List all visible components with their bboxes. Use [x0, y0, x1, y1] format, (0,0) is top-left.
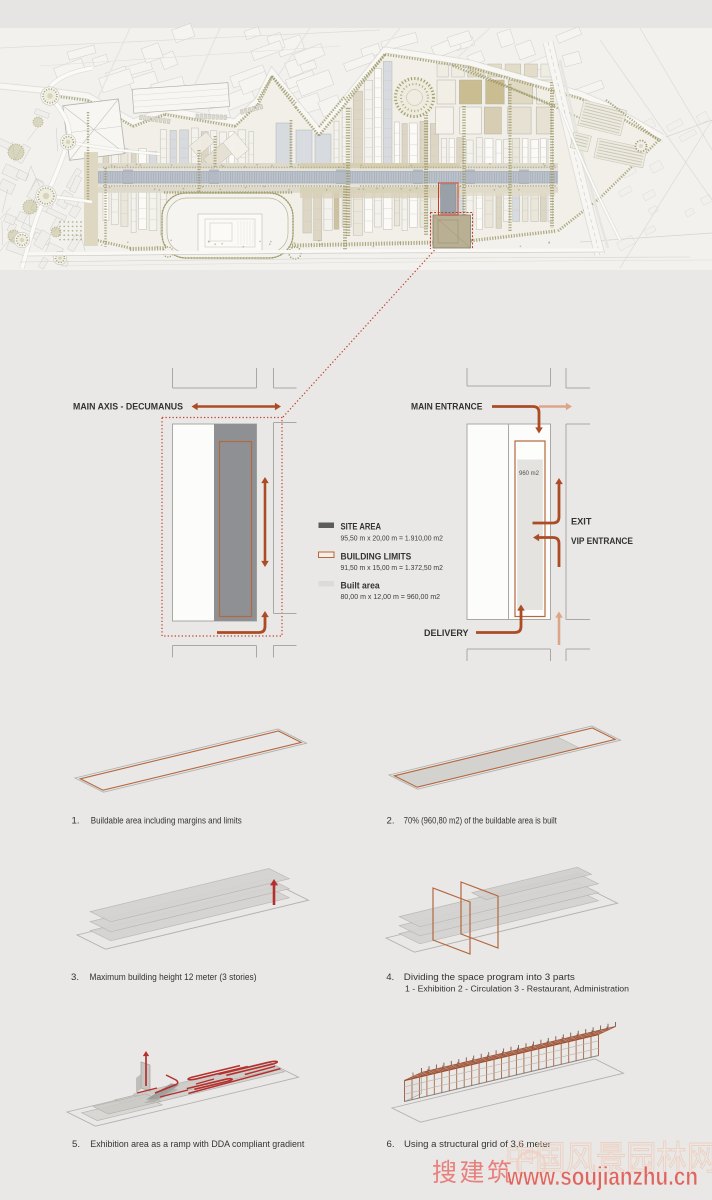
svg-text:VIP ENTRANCE: VIP ENTRANCE: [571, 536, 634, 547]
svg-text:5.: 5.: [72, 1139, 80, 1150]
svg-text:BUILDING LIMITS: BUILDING LIMITS: [341, 552, 412, 563]
svg-text:70% (960,80 m2) of the buildab: 70% (960,80 m2) of the buildable area is…: [404, 816, 557, 827]
svg-text:3.: 3.: [71, 972, 79, 983]
svg-text:Maximum building height 12 met: Maximum building height 12 meter (3 stor…: [90, 972, 257, 983]
svg-text:2.: 2.: [387, 816, 395, 827]
svg-text:MAIN AXIS - DECUMANUS: MAIN AXIS - DECUMANUS: [73, 402, 184, 413]
svg-text:Built area: Built area: [341, 581, 381, 592]
svg-text:MAIN ENTRANCE: MAIN ENTRANCE: [411, 402, 483, 413]
svg-text:Dividing the space program int: Dividing the space program into 3 parts: [404, 972, 575, 983]
svg-text:80,00 m x 12,00 m = 960,00 m2: 80,00 m x 12,00 m = 960,00 m2: [341, 592, 441, 601]
svg-text:www.soujianzhu.cn: www.soujianzhu.cn: [506, 1161, 698, 1191]
svg-text:1 - Exhibition 2 - Circulatio: 1 - Exhibition 2 - Circulation 3 - Resta…: [405, 984, 629, 994]
svg-text:1.: 1.: [72, 816, 80, 827]
svg-text:960 m2: 960 m2: [519, 470, 539, 477]
svg-text:DELIVERY: DELIVERY: [424, 628, 469, 639]
svg-text:91,50 m x 15,00 m = 1.372,50 m: 91,50 m x 15,00 m = 1.372,50 m2: [341, 563, 443, 572]
svg-text:95,50 m x 20,00 m = 1.910,00 m: 95,50 m x 20,00 m = 1.910,00 m2: [341, 534, 443, 543]
svg-text:Exhibition area as a ramp with: Exhibition area as a ramp with DDA compl…: [90, 1139, 304, 1150]
svg-text:4.: 4.: [386, 972, 394, 983]
svg-text:6.: 6.: [387, 1139, 395, 1150]
svg-text:Buildable area including margi: Buildable area including margins and lim…: [91, 816, 242, 827]
svg-text:SITE AREA: SITE AREA: [341, 522, 382, 533]
svg-text:EXIT: EXIT: [571, 517, 592, 528]
svg-text:搜建筑: 搜建筑: [432, 1159, 515, 1187]
